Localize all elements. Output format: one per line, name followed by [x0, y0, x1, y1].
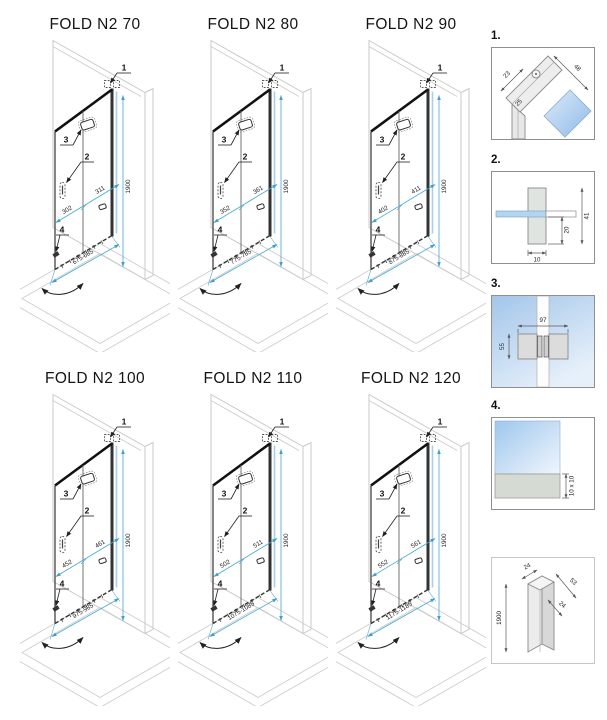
height-dim: 1900	[441, 533, 448, 548]
dim-24-top: 24	[523, 562, 533, 572]
callout-3: 3	[380, 135, 385, 145]
wall-fixing	[218, 183, 223, 199]
diagram-cell: FOLD N2 80	[174, 8, 332, 362]
wall-fixing	[376, 183, 381, 199]
detail-2-box: 10 20 41	[491, 171, 595, 264]
wall-profile-section-drawing: 10 20 41	[492, 172, 594, 263]
detail-3-box: 97 55	[491, 295, 595, 388]
dim-97: 97	[540, 317, 547, 324]
seal-strip	[495, 474, 560, 498]
callout-3: 3	[222, 489, 227, 499]
door-swing-arrow	[200, 638, 241, 649]
height-dim: 1900	[125, 179, 132, 194]
door-swing-arrow	[358, 638, 399, 649]
callout-2: 2	[401, 506, 406, 516]
bottom-pivot	[210, 605, 217, 612]
diagram-title: FOLD N2 110	[204, 370, 303, 388]
detail-2-number: 2.	[491, 154, 595, 168]
height-dim: 1900	[283, 533, 290, 548]
detail-4-box: 10 x 10	[491, 417, 595, 510]
dim-55: 55	[499, 343, 506, 350]
glass-pane	[544, 90, 591, 137]
height-dim: 1900	[125, 533, 132, 548]
detail-1: 1. 23 48 25	[491, 30, 595, 140]
detail-profile-number	[491, 540, 595, 554]
callout-2: 2	[401, 152, 406, 162]
hinge-right-plate	[549, 334, 568, 359]
shower-door-isometric-drawing: 1900 552 561 1175-1185 1 3 2	[336, 390, 486, 706]
height-dim: 1900	[441, 179, 448, 194]
diagram-title: FOLD N2 120	[361, 370, 461, 388]
shower-door-isometric-drawing: 1900 352 361 775-785 1 3 2	[178, 36, 328, 352]
bottom-pivot	[368, 251, 375, 258]
diagram-cell: FOLD N2 110	[174, 362, 332, 716]
callout-1: 1	[122, 63, 127, 73]
hinge-left-plate	[518, 334, 537, 359]
bottom-pivot	[52, 251, 59, 258]
dim-24-inner: 24	[557, 600, 567, 610]
callout-4: 4	[60, 225, 65, 235]
callout-3: 3	[380, 489, 385, 499]
hinge-knuckle	[544, 336, 549, 357]
bottom-seal-drawing: 10 x 10	[492, 418, 594, 509]
glass-pane	[495, 421, 560, 474]
callout-2: 2	[243, 152, 248, 162]
wall-fixing	[218, 537, 223, 553]
detail-4-number: 4.	[491, 400, 595, 414]
diagrams-grid: FOLD N2 70	[16, 8, 490, 716]
wall-fixing	[60, 537, 65, 553]
hinge-detail-drawing: 97 55	[492, 296, 594, 387]
callout-4: 4	[60, 579, 65, 589]
glass-strip	[496, 211, 546, 217]
wall-fixing	[60, 183, 65, 199]
detail-4: 4. 10 x 10	[491, 400, 595, 510]
callout-4: 4	[376, 579, 381, 589]
corner-profile-drawing: 23 48 25	[492, 48, 594, 139]
detail-3-number: 3.	[491, 278, 595, 292]
detail-profile: 1900 24 53 24	[491, 540, 595, 664]
dim-48: 48	[572, 63, 582, 73]
height-dim: 1900	[283, 179, 290, 194]
dim-20: 20	[564, 226, 571, 233]
diagram-cell: FOLD N2 120	[332, 362, 490, 716]
detail-profile-box: 1900 24 53 24	[491, 557, 595, 664]
door-swing-arrow	[42, 284, 83, 295]
diagram-cell: FOLD N2 90	[332, 8, 490, 362]
callout-2: 2	[243, 506, 248, 516]
callout-2: 2	[85, 506, 90, 516]
diagram-title: FOLD N2 70	[49, 16, 140, 34]
callout-2: 2	[85, 152, 90, 162]
dim-41: 41	[584, 212, 591, 219]
callout-1: 1	[438, 417, 443, 427]
diagram-cell: FOLD N2 70	[16, 8, 174, 362]
callout-4: 4	[218, 579, 223, 589]
detail-1-box: 23 48 25	[491, 47, 595, 140]
diagram-title: FOLD N2 80	[207, 16, 298, 34]
callout-4: 4	[218, 225, 223, 235]
door-swing-arrow	[200, 284, 241, 295]
detail-1-number: 1.	[491, 30, 595, 44]
details-column: 1. 23 48 25	[491, 0, 605, 720]
diagram-cell: FOLD N2 100	[16, 362, 174, 716]
bottom-pivot	[368, 605, 375, 612]
diagram-title: FOLD N2 90	[365, 16, 456, 34]
door-swing-arrow	[42, 638, 83, 649]
dim-53: 53	[568, 577, 578, 587]
dim-10x10: 10 x 10	[569, 475, 576, 496]
callout-1: 1	[122, 417, 127, 427]
callout-3: 3	[64, 489, 69, 499]
callout-4: 4	[376, 225, 381, 235]
detail-3: 3. 97 55	[491, 278, 595, 388]
glass-strip-edge	[546, 211, 576, 217]
door-swing-arrow	[358, 284, 399, 295]
vertical-profile-drawing: 1900 24 53 24	[492, 558, 594, 663]
detail-2: 2. 10 20 41	[491, 154, 595, 264]
callout-1: 1	[280, 63, 285, 73]
callout-1: 1	[280, 417, 285, 427]
shower-door-isometric-drawing: 1900 302 311 675-685 1 3 2	[20, 36, 170, 352]
shower-door-isometric-drawing: 1900 502 511 1075-1085 1 3 2	[178, 390, 328, 706]
shower-door-isometric-drawing: 1900 452 461 975-985 1 3 2	[20, 390, 170, 706]
wall-fixing	[376, 537, 381, 553]
callout-3: 3	[64, 135, 69, 145]
diagram-title: FOLD N2 100	[45, 370, 145, 388]
dim-10: 10	[534, 257, 541, 264]
bottom-pivot	[210, 251, 217, 258]
dim-1900: 1900	[496, 611, 503, 625]
callout-3: 3	[222, 135, 227, 145]
bottom-pivot	[52, 605, 59, 612]
shower-door-isometric-drawing: 1900 402 411 875-885 1 3 2	[336, 36, 486, 352]
callout-1: 1	[438, 63, 443, 73]
dim-23: 23	[502, 70, 512, 80]
hinge-knuckle	[538, 336, 543, 357]
